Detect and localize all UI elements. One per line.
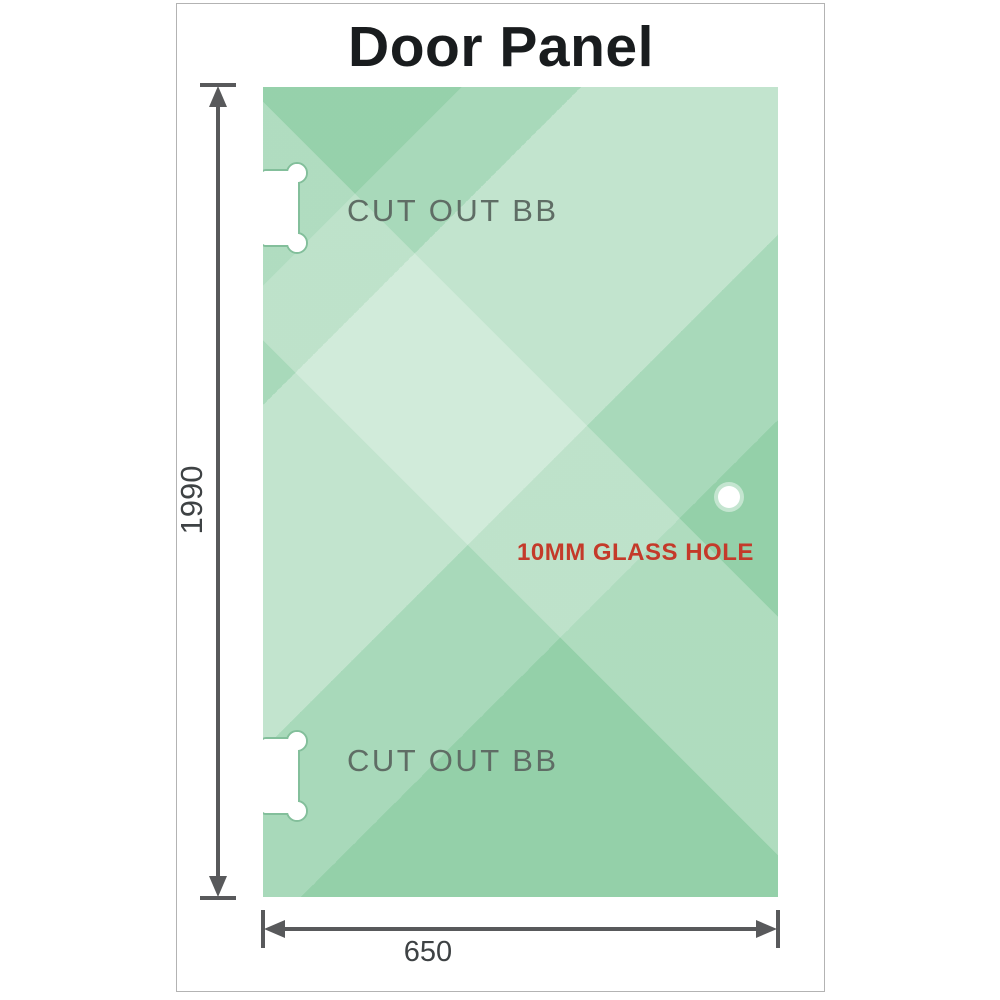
height-dimension-label: 1990 [174, 466, 210, 535]
cutout-label-top: CUT OUT BB [347, 193, 559, 229]
hinge-cutout-bottom-icon [263, 728, 311, 824]
page-title: Door Panel [176, 14, 826, 80]
hinge-cutout-top-icon [263, 160, 311, 256]
cutout-label-bottom: CUT OUT BB [347, 743, 559, 779]
width-dimension-label: 650 [263, 936, 593, 969]
glass-hole [718, 486, 740, 508]
glass-hole-label: 10MM GLASS HOLE [517, 539, 754, 567]
door-panel-diagram: Door Panel CUT OUT BB CUT OUT BB 10MM GL… [0, 0, 1000, 1000]
